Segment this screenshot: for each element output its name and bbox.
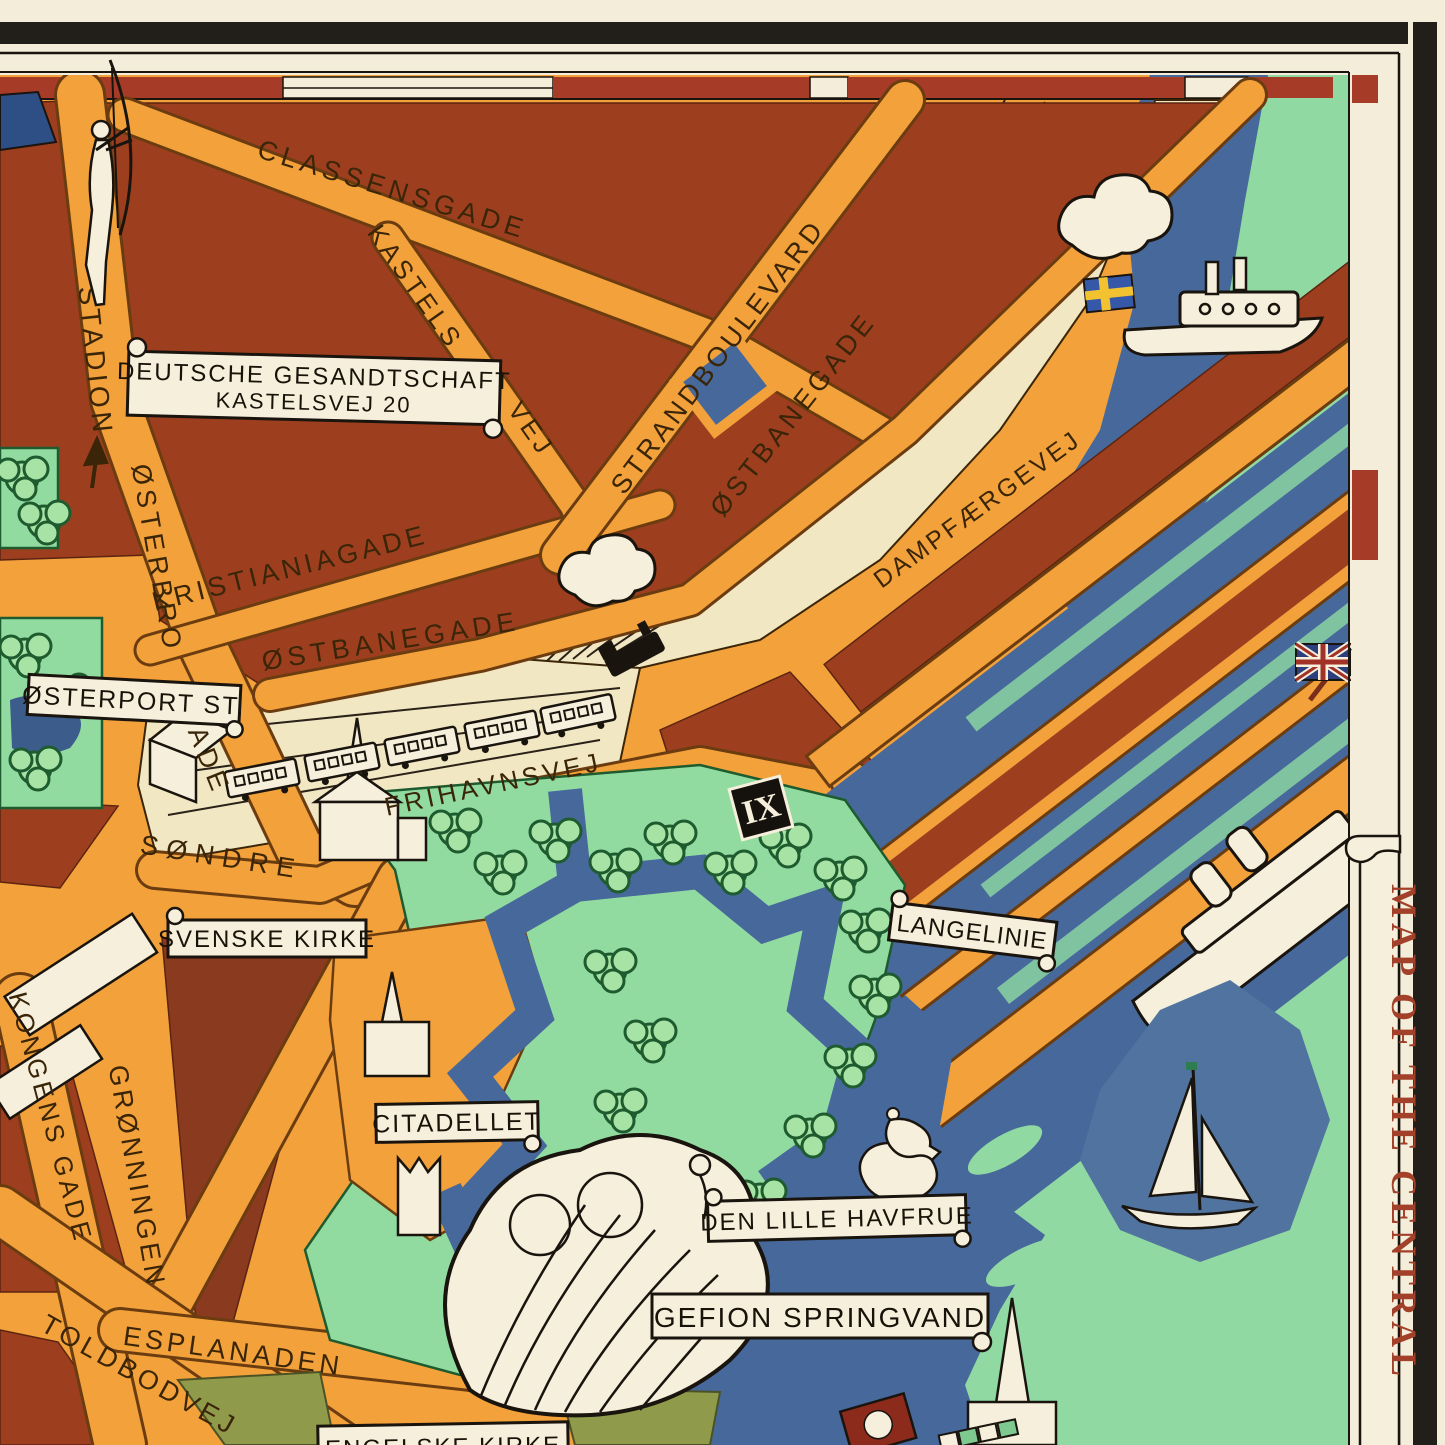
sign-text: GEFION SPRINGVAND <box>654 1302 986 1333</box>
map-canvas: CLASSENSGADE KASTELS VEJ STADION ØSTERBR… <box>0 0 1445 1445</box>
top-band <box>0 77 1333 99</box>
citadel-gate-icon <box>398 1158 440 1235</box>
pennant <box>1186 1062 1197 1070</box>
sign-text: CITADELLET <box>372 1108 542 1139</box>
copenhagen-pictorial-map: CLASSENSGADE KASTELS VEJ STADION ØSTERBR… <box>0 0 1445 1445</box>
frame-bar-top <box>0 22 1408 44</box>
sign-engelske-kirke: ENGELSKE KIRKE <box>318 1422 569 1445</box>
map-content: CLASSENSGADE KASTELS VEJ STADION ØSTERBR… <box>0 75 1445 1445</box>
sign-text: KASTELSVEJ 20 <box>215 387 412 417</box>
swedish-flag-icon <box>1084 274 1135 312</box>
title-banner: MAP OF THE CENTRAL <box>1346 836 1424 1445</box>
banner-title-text: MAP OF THE CENTRAL <box>1384 884 1424 1381</box>
margin-red-block-mid <box>1352 470 1378 560</box>
sign-text: SVENSKE KIRKE <box>158 926 376 953</box>
marker-pier-ix: IX <box>729 776 793 840</box>
margin-red-block-top <box>1352 75 1378 103</box>
